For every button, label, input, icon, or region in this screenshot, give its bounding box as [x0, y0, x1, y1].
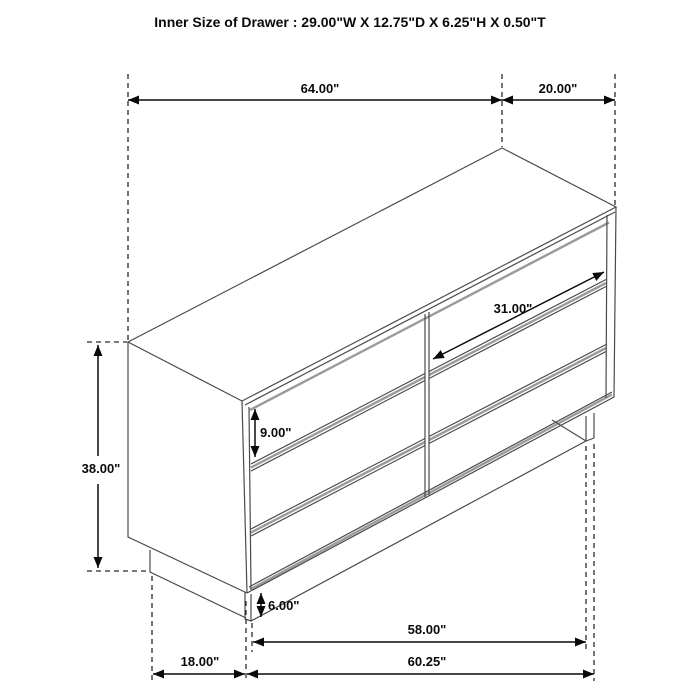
dim-label-overall-height: 38.00"	[82, 461, 121, 476]
dresser-dimension-svg: Inner Size of Drawer : 29.00"W X 12.75"D…	[0, 0, 700, 700]
dresser-dimension-diagram: Inner Size of Drawer : 29.00"W X 12.75"D…	[0, 0, 700, 700]
dim-label-base-height: 6.00"	[268, 598, 299, 613]
dim-label-floor-depth: 18.00"	[181, 654, 220, 669]
diagram-title: Inner Size of Drawer : 29.00"W X 12.75"D…	[154, 14, 546, 30]
dim-label-drawer-height: 9.00"	[260, 425, 291, 440]
dim-label-top-depth: 20.00"	[539, 81, 578, 96]
dim-label-base-width: 58.00"	[408, 622, 447, 637]
dim-label-floor-width: 60.25"	[408, 654, 447, 669]
dim-label-drawer-width: 31.00"	[494, 301, 533, 316]
dim-label-top-width: 64.00"	[301, 81, 340, 96]
